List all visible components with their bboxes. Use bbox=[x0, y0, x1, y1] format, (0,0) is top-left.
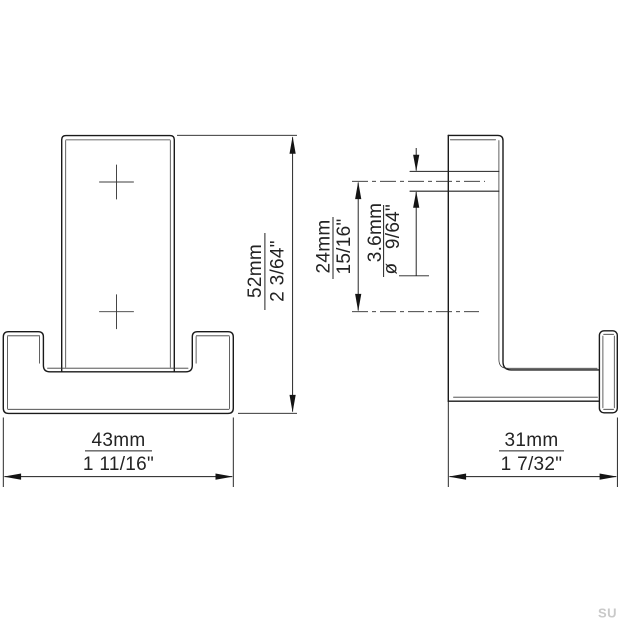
arrowhead-left bbox=[449, 474, 467, 480]
arrowhead-right bbox=[216, 474, 234, 480]
dim-width-inch: 1 11/16" bbox=[83, 454, 154, 475]
dim-spacing-mm: 24mm bbox=[314, 220, 335, 274]
side-edge-highlights bbox=[450, 140, 614, 410]
arrowhead-left bbox=[4, 474, 22, 480]
dimension-depth: 31mm 1 7/32" bbox=[448, 401, 617, 487]
dim-width-mm: 43mm bbox=[92, 430, 146, 451]
arrowhead-down bbox=[290, 395, 296, 413]
dim-height-mm: 52mm bbox=[245, 244, 266, 298]
dim-depth-mm: 31mm bbox=[505, 430, 559, 451]
watermark-text: SU bbox=[598, 606, 617, 620]
dimension-height: 52mm 2 3/64" bbox=[177, 135, 297, 413]
arrowhead-up bbox=[413, 191, 419, 208]
arrowhead-up bbox=[290, 136, 296, 154]
dimension-hole-diameter: ø 3.6mm 9/64" bbox=[365, 148, 429, 277]
side-plate-and-arm-outline bbox=[448, 135, 599, 370]
hook-dimension-drawing: 52mm 2 3/64" 43mm 1 11/16" 31mm 1 7/32" bbox=[0, 0, 620, 620]
dim-height-inch: 2 3/64" bbox=[268, 240, 289, 302]
dim-spacing-inch: 15/16" bbox=[334, 218, 355, 274]
arrowhead-down bbox=[413, 155, 419, 172]
arrowhead-up bbox=[355, 182, 361, 200]
front-view bbox=[3, 136, 233, 414]
dim-diameter-inch: 9/64" bbox=[383, 204, 404, 249]
technical-drawing-page: 52mm 2 3/64" 43mm 1 11/16" 31mm 1 7/32" bbox=[0, 0, 620, 620]
dim-depth-inch: 1 7/32" bbox=[501, 454, 563, 475]
dimension-width: 43mm 1 11/16" bbox=[3, 418, 233, 488]
dimension-hole-spacing: 24mm 15/16" bbox=[314, 182, 362, 312]
arrowhead-down bbox=[355, 294, 361, 312]
arrowhead-right bbox=[600, 474, 618, 480]
side-view bbox=[410, 135, 617, 412]
front-plate-outline bbox=[62, 136, 175, 372]
